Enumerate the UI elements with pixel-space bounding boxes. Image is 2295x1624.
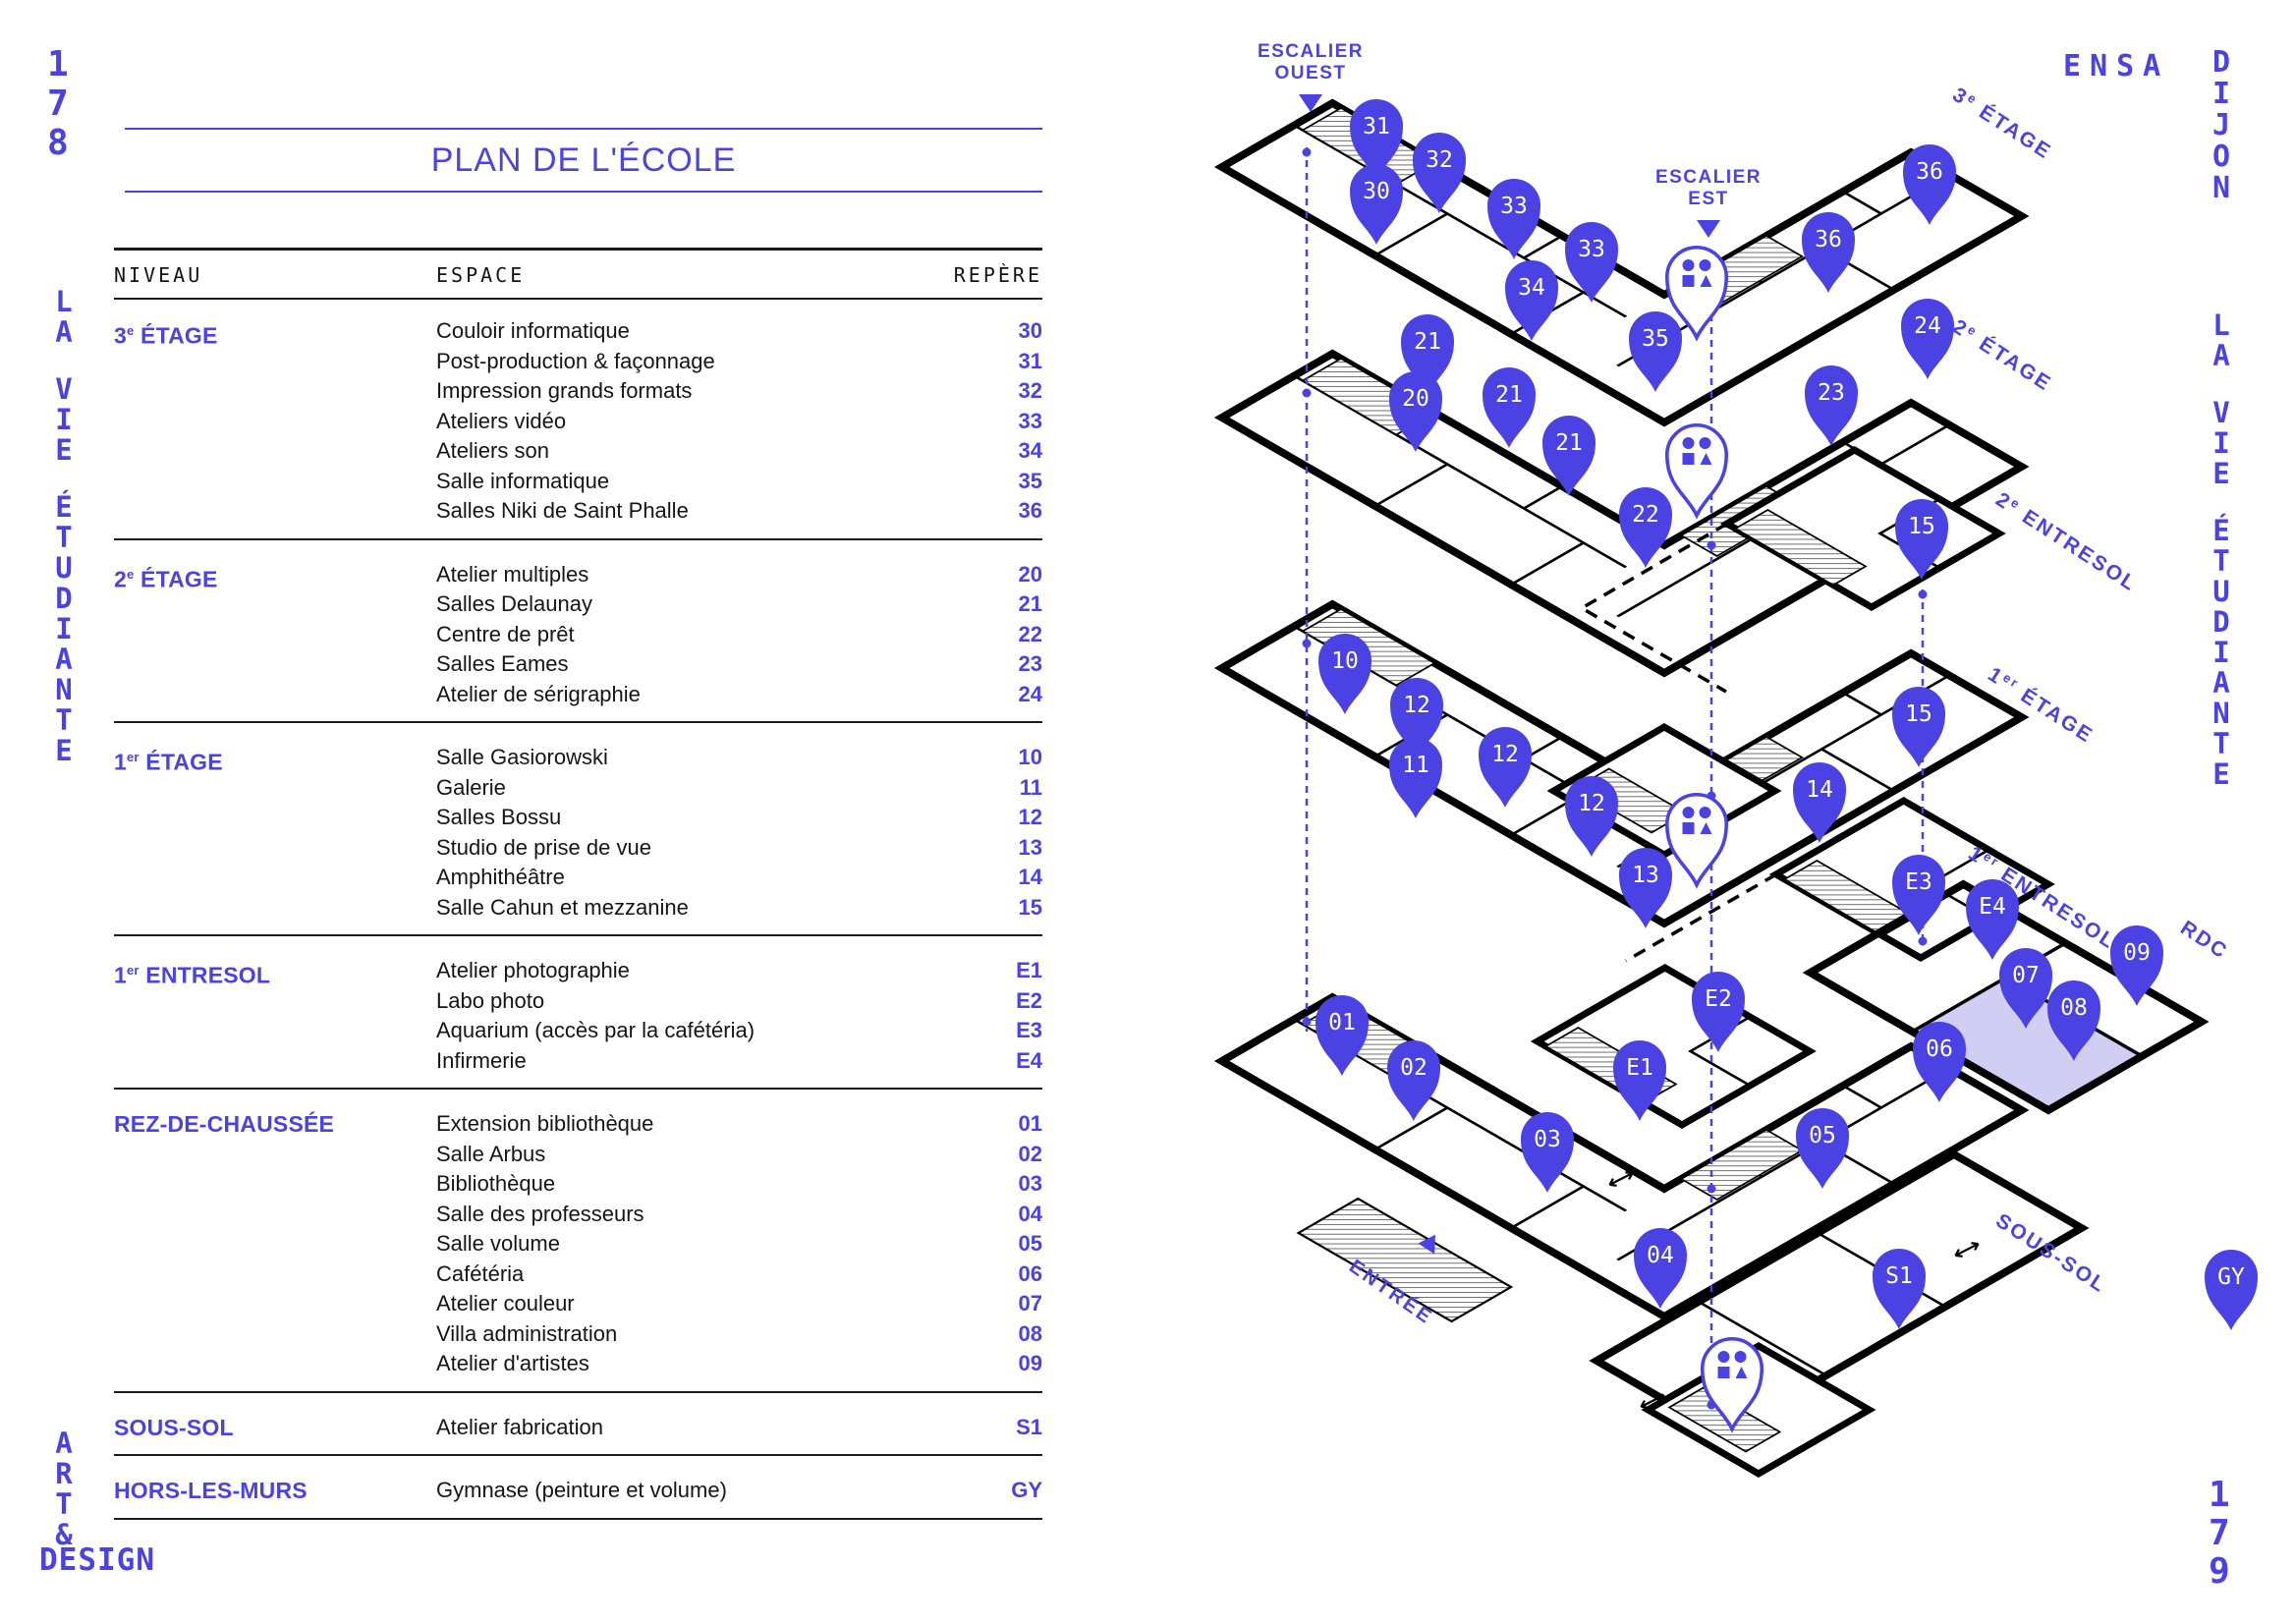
map-pin-label: 06 <box>1926 1036 1953 1062</box>
map-pin-label: 12 <box>1403 693 1430 718</box>
map-pin-label: 33 <box>1500 194 1528 219</box>
map-pin-21: 21 <box>1483 367 1536 448</box>
map-pin-label: 13 <box>1632 863 1659 888</box>
stair-west-label-line1: ESCALIER <box>1258 41 1364 62</box>
floor-label: 2e ÉTAGE <box>1948 314 2056 396</box>
map-pin-label: 21 <box>1555 430 1583 456</box>
mezzanine-1-west-plan <box>1538 968 1810 1125</box>
map-pin-label: 10 <box>1331 648 1359 674</box>
map-pin-label: 30 <box>1363 179 1390 204</box>
map-pin-label: 34 <box>1518 275 1545 301</box>
map-pin-11: 11 <box>1389 738 1442 818</box>
map-pin-label: 12 <box>1491 742 1519 767</box>
map-pin-label: 01 <box>1328 1010 1356 1036</box>
map-pin-label: 20 <box>1402 386 1429 412</box>
map-pin-label: 15 <box>1905 701 1932 727</box>
map-pin-label: 04 <box>1647 1243 1674 1268</box>
map-pin-label: 15 <box>1908 514 1935 539</box>
map-pin-label: 23 <box>1818 380 1845 406</box>
stair-east-pointer-icon <box>1697 220 1720 238</box>
facilities-pin <box>1667 425 1726 516</box>
map-pin-label: 12 <box>1578 791 1605 816</box>
map-pin-GY: GY <box>2205 1250 2258 1330</box>
map-pin-label: 36 <box>1815 227 1842 252</box>
map-pin-label: 36 <box>1916 159 1943 185</box>
floor-label: 2e ENTRESOL <box>1991 487 2142 596</box>
map-pin-E4: E4 <box>1966 879 2019 960</box>
map-pin-label: 14 <box>1806 777 1833 803</box>
floor-label: RDC <box>2176 917 2232 964</box>
map-pin-label: 22 <box>1632 502 1659 528</box>
map-pin-label: 05 <box>1809 1123 1836 1148</box>
map-pin-label: 32 <box>1426 147 1453 173</box>
stair-east-label-line1: ESCALIER <box>1655 167 1762 188</box>
book-spread: 178 LAVIEÉTUDIANTE ART& DESIGN PLAN DE L… <box>0 0 2295 1624</box>
map-pin-label: 08 <box>2060 995 2088 1021</box>
map-pin-label: 02 <box>1400 1055 1427 1081</box>
map-pin-label: 35 <box>1642 326 1669 352</box>
map-pin-label: 11 <box>1402 753 1429 778</box>
map-pin-label: S1 <box>1885 1263 1913 1289</box>
school-isometric-map: ESCALIER OUEST ESCALIER EST ENTRÉE 3e ÉT… <box>0 0 2295 1624</box>
map-pin-label: 24 <box>1914 313 1941 339</box>
stair-east-label-line2: EST <box>1688 189 1728 209</box>
map-pin-label: E3 <box>1905 869 1932 895</box>
map-pin-label: 31 <box>1363 114 1390 140</box>
floor-label: 3e ÉTAGE <box>1948 83 2056 164</box>
map-pin-label: E1 <box>1626 1055 1653 1081</box>
map-pin-label: 03 <box>1534 1127 1561 1152</box>
map-pin-label: 09 <box>2123 940 2151 966</box>
map-pin-label: 33 <box>1578 237 1605 262</box>
map-pin-label: 21 <box>1495 382 1523 408</box>
map-pin-label: GY <box>2217 1264 2245 1290</box>
map-pin-label: 21 <box>1414 329 1441 355</box>
stair-west-label-line2: OUEST <box>1275 63 1347 84</box>
map-pin-24: 24 <box>1901 299 1954 379</box>
map-pin-label: E4 <box>1979 894 2006 920</box>
map-pin-label: E2 <box>1705 986 1732 1012</box>
map-pin-label: 07 <box>2012 963 2040 988</box>
